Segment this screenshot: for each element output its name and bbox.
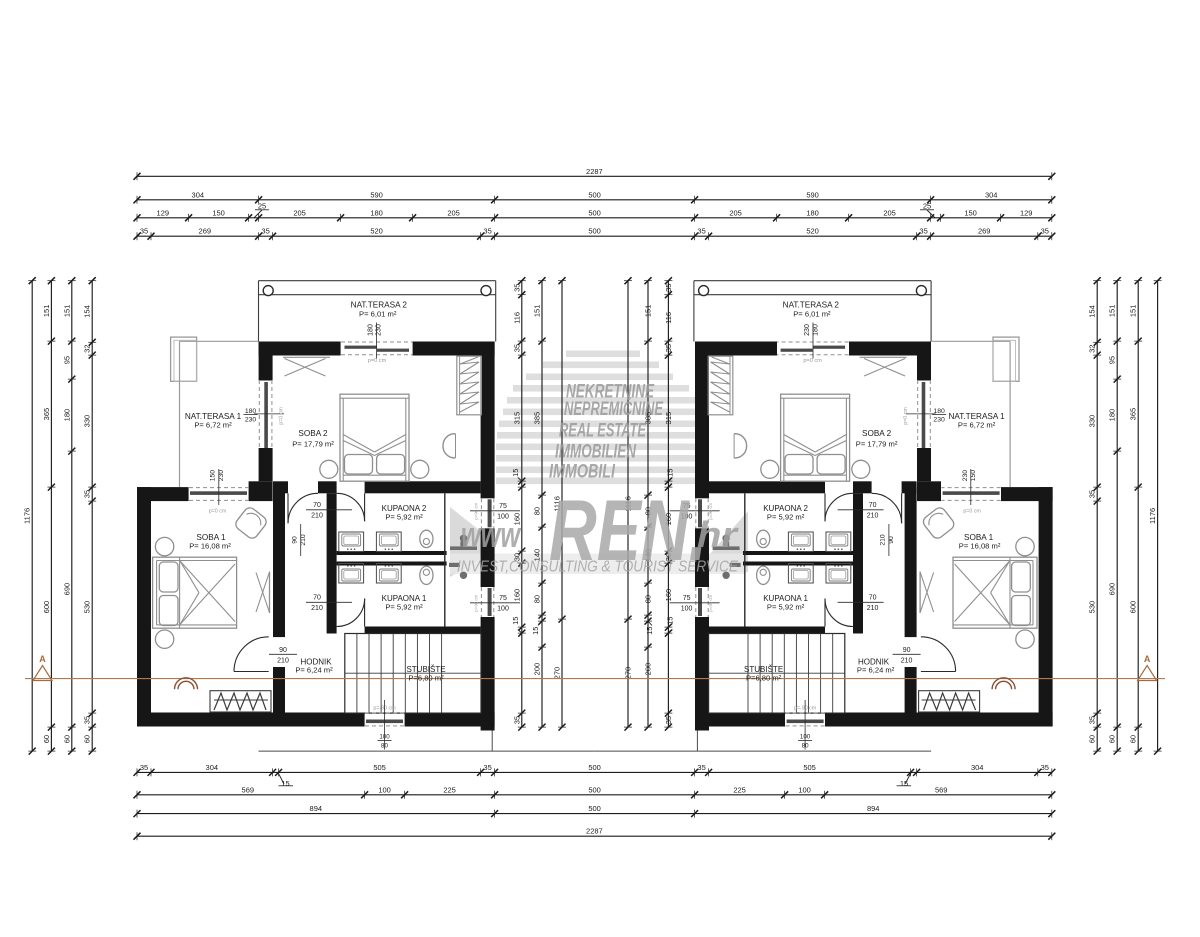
svg-text:p=0 cm: p=0 cm <box>903 407 909 425</box>
svg-text:P= 6,01 m²: P= 6,01 m² <box>359 309 397 318</box>
svg-text:35: 35 <box>512 344 521 352</box>
svg-text:80: 80 <box>533 595 542 603</box>
svg-text:60: 60 <box>83 735 92 743</box>
svg-text:p=0 cm: p=0 cm <box>368 358 387 364</box>
svg-text:1176: 1176 <box>1148 508 1157 524</box>
svg-text:35: 35 <box>1041 227 1049 236</box>
svg-text:35: 35 <box>919 227 927 236</box>
svg-text:60: 60 <box>1088 735 1097 743</box>
svg-text:500: 500 <box>588 785 601 794</box>
svg-text:35: 35 <box>140 227 148 236</box>
svg-text:95: 95 <box>1108 356 1117 364</box>
svg-text:154: 154 <box>1088 305 1097 318</box>
svg-text:180: 180 <box>806 208 819 217</box>
svg-text:520: 520 <box>370 227 383 236</box>
svg-text:35: 35 <box>1088 716 1097 724</box>
svg-text:P= 16,08 m²: P= 16,08 m² <box>189 542 231 551</box>
svg-text:590: 590 <box>806 190 819 199</box>
svg-text:P= 6,01 m²: P= 6,01 m² <box>793 309 831 318</box>
svg-text:35: 35 <box>483 763 491 772</box>
svg-text:NAT.TERASA 1: NAT.TERASA 1 <box>185 412 242 421</box>
svg-text:SOBA 2: SOBA 2 <box>862 429 892 438</box>
svg-text:151: 151 <box>62 305 71 318</box>
svg-text:269: 269 <box>978 227 991 236</box>
svg-text:70: 70 <box>313 502 321 509</box>
svg-text:505: 505 <box>803 763 816 772</box>
svg-text:IMMOBILIEN: IMMOBILIEN <box>555 442 637 463</box>
svg-text:230: 230 <box>962 470 969 482</box>
svg-text:A: A <box>39 654 46 664</box>
svg-text:304: 304 <box>192 190 205 199</box>
svg-text:32: 32 <box>1088 345 1097 353</box>
svg-text:690: 690 <box>62 583 71 596</box>
svg-text:15: 15 <box>665 469 674 477</box>
svg-text:NEPREMIČNINE: NEPREMIČNINE <box>564 398 664 420</box>
svg-text:210: 210 <box>277 657 289 664</box>
svg-text:600: 600 <box>42 601 51 614</box>
svg-text:P= 5,92 m²: P= 5,92 m² <box>385 512 423 521</box>
svg-text:p=0 cm: p=0 cm <box>803 358 822 364</box>
svg-text:SOBA 2: SOBA 2 <box>298 429 328 438</box>
svg-text:210: 210 <box>311 513 323 520</box>
svg-text:P= 5,92 m²: P= 5,92 m² <box>767 602 805 611</box>
svg-text:210: 210 <box>311 605 323 612</box>
svg-text:230: 230 <box>245 417 257 424</box>
svg-text:75: 75 <box>499 595 507 602</box>
svg-text:180: 180 <box>1108 409 1117 422</box>
svg-text:151: 151 <box>1108 305 1117 318</box>
svg-text:151: 151 <box>533 305 542 318</box>
svg-text:270: 270 <box>553 667 562 680</box>
svg-text:P= 5,92 m²: P= 5,92 m² <box>767 512 805 521</box>
svg-text:35: 35 <box>1041 763 1049 772</box>
svg-text:116: 116 <box>664 312 673 324</box>
svg-text:500: 500 <box>588 208 601 217</box>
svg-text:60: 60 <box>1108 735 1117 743</box>
svg-text:90: 90 <box>903 647 911 654</box>
svg-text:205: 205 <box>293 208 306 217</box>
svg-text:INVEST,CONSULTING & TOURIST SE: INVEST,CONSULTING & TOURIST SERVICE <box>457 559 738 576</box>
svg-text:90: 90 <box>292 536 299 544</box>
svg-text:90: 90 <box>279 647 287 654</box>
svg-text:180: 180 <box>367 324 374 336</box>
svg-text:80: 80 <box>644 595 653 603</box>
svg-text:500: 500 <box>588 763 601 772</box>
svg-text:P=6,80 m²: P=6,80 m² <box>746 673 782 682</box>
svg-text:600: 600 <box>1129 601 1138 614</box>
svg-text:60: 60 <box>62 735 71 743</box>
svg-text:180: 180 <box>62 409 71 422</box>
svg-text:304: 304 <box>206 763 219 772</box>
svg-text:505: 505 <box>373 763 386 772</box>
svg-text:269: 269 <box>199 227 212 236</box>
svg-text:35: 35 <box>512 284 521 292</box>
svg-text:315: 315 <box>664 412 673 425</box>
svg-text:304: 304 <box>985 190 998 199</box>
svg-text:151: 151 <box>1129 305 1138 318</box>
svg-text:315: 315 <box>512 412 521 425</box>
svg-text:385: 385 <box>533 412 542 425</box>
svg-text:205: 205 <box>447 208 460 217</box>
svg-text:365: 365 <box>42 408 51 421</box>
svg-text:p=90 cm: p=90 cm <box>708 594 713 611</box>
svg-text:530: 530 <box>1088 601 1097 614</box>
svg-text:35: 35 <box>697 763 705 772</box>
svg-text:35: 35 <box>664 344 673 352</box>
svg-text:80: 80 <box>533 507 542 515</box>
svg-text:p=90 cm: p=90 cm <box>474 594 479 611</box>
svg-text:70: 70 <box>313 595 321 602</box>
svg-text:154: 154 <box>83 305 92 318</box>
svg-text:A: A <box>1144 654 1151 664</box>
svg-text:P= 6,24 m²: P= 6,24 m² <box>857 665 895 674</box>
svg-text:p=0 cm: p=0 cm <box>279 407 285 425</box>
svg-text:70: 70 <box>869 595 877 602</box>
svg-text:15: 15 <box>511 469 520 477</box>
svg-text:160: 160 <box>664 589 673 602</box>
svg-text:NAT.TERASA 1: NAT.TERASA 1 <box>948 412 1005 421</box>
svg-text:35: 35 <box>261 227 269 236</box>
svg-text:P= 17,79 m²: P= 17,79 m² <box>856 440 898 449</box>
svg-text:500: 500 <box>588 190 601 199</box>
svg-text:35: 35 <box>140 763 148 772</box>
svg-text:60: 60 <box>1129 735 1138 743</box>
svg-text:35: 35 <box>83 716 92 724</box>
svg-text:520: 520 <box>806 227 819 236</box>
svg-text:p=0 cm: p=0 cm <box>963 509 981 515</box>
svg-text:REAL ESTATE: REAL ESTATE <box>559 421 647 442</box>
svg-text:100: 100 <box>378 785 391 794</box>
svg-text:35: 35 <box>664 284 673 292</box>
svg-text:500: 500 <box>588 227 601 236</box>
svg-text:P=6,80 m²: P=6,80 m² <box>408 673 444 682</box>
svg-text:P= 5,92 m²: P= 5,92 m² <box>385 602 423 611</box>
svg-text:210: 210 <box>867 605 879 612</box>
svg-text:210: 210 <box>901 657 913 664</box>
svg-text:210: 210 <box>867 513 879 520</box>
svg-text:205: 205 <box>729 208 742 217</box>
svg-text:35: 35 <box>697 227 705 236</box>
svg-text:160: 160 <box>512 589 521 602</box>
svg-text:15: 15 <box>511 617 520 625</box>
svg-text:75: 75 <box>683 595 691 602</box>
svg-text:230: 230 <box>804 324 811 336</box>
svg-text:200: 200 <box>644 663 653 676</box>
svg-text:530: 530 <box>83 601 92 614</box>
svg-text:NAT.TERASA 2: NAT.TERASA 2 <box>351 301 408 310</box>
svg-text:P= 6,72 m²: P= 6,72 m² <box>194 421 232 430</box>
svg-text:569: 569 <box>242 785 255 794</box>
svg-text:www: www <box>461 514 521 555</box>
svg-text:1176: 1176 <box>23 508 32 524</box>
svg-text:180: 180 <box>370 208 383 217</box>
svg-text:205: 205 <box>883 208 896 217</box>
svg-text:330: 330 <box>1088 415 1097 428</box>
svg-text:2287: 2287 <box>586 167 603 176</box>
svg-text:150: 150 <box>210 470 217 482</box>
svg-text:35: 35 <box>664 716 673 724</box>
svg-text:IMMOBILI: IMMOBILI <box>549 462 616 483</box>
svg-text:35: 35 <box>83 490 92 498</box>
svg-text:15: 15 <box>531 627 540 635</box>
svg-text:70: 70 <box>869 502 877 509</box>
svg-text:NAT.TERASA 2: NAT.TERASA 2 <box>783 301 840 310</box>
svg-text:P= 17,79 m²: P= 17,79 m² <box>292 440 334 449</box>
svg-text:p=0 cm: p=0 cm <box>209 509 227 515</box>
svg-text:100: 100 <box>497 606 509 613</box>
svg-text:P= 6,24 m²: P= 6,24 m² <box>295 665 333 674</box>
svg-text:hr: hr <box>697 514 739 555</box>
svg-text:500: 500 <box>588 804 601 813</box>
svg-text:894: 894 <box>867 804 880 813</box>
svg-text:365: 365 <box>1129 408 1138 421</box>
svg-text:894: 894 <box>310 804 323 813</box>
svg-text:100: 100 <box>798 785 811 794</box>
svg-text:75: 75 <box>499 503 507 510</box>
svg-text:15: 15 <box>645 627 654 635</box>
svg-text:2287: 2287 <box>586 827 603 836</box>
svg-text:15: 15 <box>665 617 674 625</box>
svg-text:690: 690 <box>1108 583 1117 596</box>
svg-text:25: 25 <box>258 202 266 211</box>
svg-text:569: 569 <box>935 785 948 794</box>
svg-text:95: 95 <box>62 356 71 364</box>
svg-text:225: 225 <box>443 785 456 794</box>
svg-text:35: 35 <box>1088 490 1097 498</box>
svg-text:590: 590 <box>370 190 383 199</box>
svg-text:35: 35 <box>512 716 521 724</box>
svg-text:150: 150 <box>964 208 977 217</box>
svg-text:200: 200 <box>533 663 542 676</box>
svg-text:100: 100 <box>681 606 693 613</box>
svg-text:P= 6,72 m²: P= 6,72 m² <box>958 421 996 430</box>
svg-text:151: 151 <box>42 305 51 318</box>
svg-text:151: 151 <box>644 305 653 318</box>
svg-text:230: 230 <box>933 417 945 424</box>
svg-text:35: 35 <box>483 227 491 236</box>
svg-text:210: 210 <box>880 534 887 546</box>
svg-text:304: 304 <box>971 763 984 772</box>
svg-text:129: 129 <box>157 208 170 217</box>
svg-text:25: 25 <box>923 202 931 211</box>
svg-text:116: 116 <box>512 312 521 324</box>
svg-text:129: 129 <box>1020 208 1033 217</box>
svg-text:P= 16,08 m²: P= 16,08 m² <box>959 542 1001 551</box>
svg-text:330: 330 <box>83 415 92 428</box>
svg-text:225: 225 <box>733 785 746 794</box>
svg-text:32: 32 <box>83 345 92 353</box>
svg-text:60: 60 <box>42 735 51 743</box>
svg-text:270: 270 <box>624 667 633 680</box>
svg-text:150: 150 <box>212 208 225 217</box>
